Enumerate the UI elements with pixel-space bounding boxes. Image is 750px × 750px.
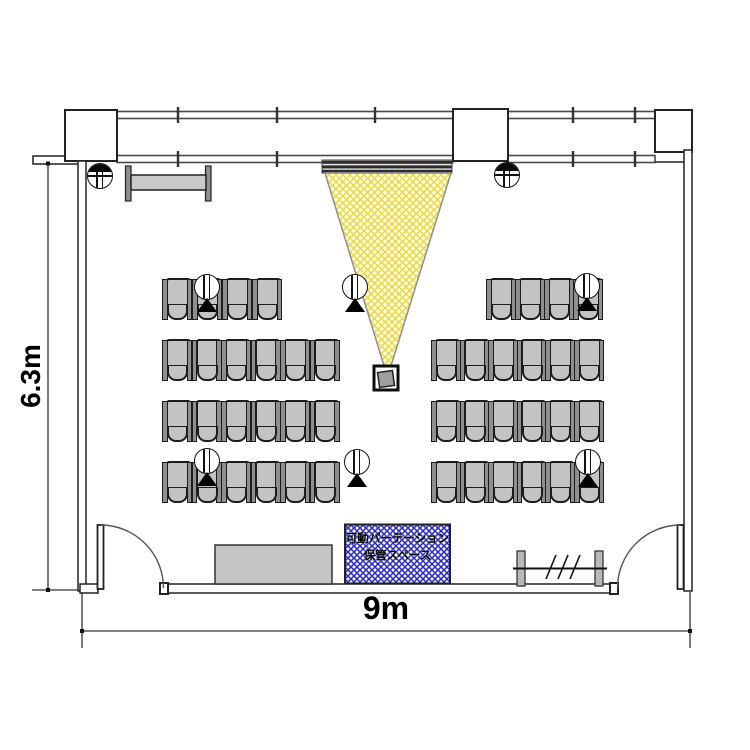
left-wall — [78, 161, 86, 591]
right-door-swing-arc — [618, 525, 681, 588]
height-dimension-label: 6.3m — [15, 326, 45, 426]
projection-screen — [322, 160, 452, 173]
projector-beam — [325, 173, 451, 369]
right-door — [618, 525, 684, 589]
partition-storage-label-line2: 保管スペース — [345, 548, 450, 565]
floor-plan-drawing — [0, 0, 750, 750]
partition-storage-label-line1: 可動パーテーション — [345, 531, 450, 548]
left-door-swing-arc — [101, 525, 164, 588]
door-jamb-right — [610, 583, 618, 594]
partition-storage-label: 可動パーテーション 保管スペース — [345, 531, 450, 565]
corner-column-top-right — [655, 110, 692, 152]
folding-tables-stack — [513, 551, 607, 586]
corner-column-top-left — [65, 110, 117, 161]
right-wall — [684, 150, 692, 591]
storage-cabinet — [215, 545, 332, 584]
center-column — [453, 109, 508, 161]
projector — [374, 366, 398, 390]
left-door — [98, 525, 164, 589]
width-dimension-label: 9m — [326, 590, 446, 627]
top-wall-windows — [117, 107, 655, 167]
floor-plan: 6.3m 9m 可動パーテーション 保管スペース — [0, 0, 750, 750]
teacher-desk — [126, 166, 212, 201]
